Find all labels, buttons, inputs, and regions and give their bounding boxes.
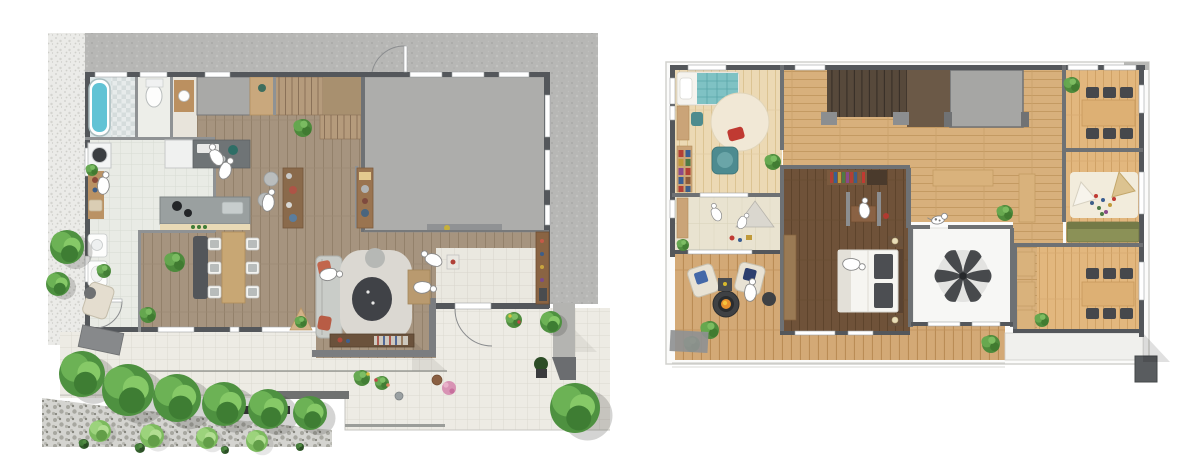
table-dot [366,290,369,293]
window [670,78,675,104]
washer-door [92,148,107,163]
window [1139,172,1144,214]
window [972,322,1000,326]
laundry-item [92,177,98,183]
floor-plan-figure [0,0,1200,470]
stairs-landing [323,77,361,115]
genkan-stand-item [451,260,456,265]
office-chair [1120,268,1133,279]
book [686,186,691,192]
dining-bench [193,236,208,299]
first-floor-plan [42,33,613,455]
book [686,168,691,175]
counter-pot [228,145,238,155]
workspace-table [1082,100,1135,126]
toy [738,238,742,242]
window [1068,65,1098,70]
tv-item [338,338,343,343]
tv-books [374,336,408,345]
book [686,150,691,157]
office-chair [1103,128,1116,139]
laundry-basket [89,200,102,211]
window [545,205,550,225]
sofa-pillow [317,315,332,331]
chair-seat [248,288,257,296]
roof-box [950,70,1023,127]
window [452,72,484,77]
shoe-item [540,252,544,256]
wall2-play-left [1062,148,1066,222]
office-chair [1086,87,1099,98]
kids-rug [711,93,769,151]
wall-cabinet-strip [1017,252,1035,276]
book [686,159,691,166]
book [830,172,833,183]
watering-can [395,392,403,400]
window [670,106,675,120]
garage-floor [364,77,549,232]
vanity-sink [179,91,190,102]
toy [730,236,735,241]
window [1139,262,1144,300]
wall-bath-2 [170,77,173,140]
flower-dot [508,314,511,317]
spiky-plant [79,439,89,449]
wall2-meeting-top [1013,243,1143,247]
window [545,150,550,190]
roof-stub [944,112,952,127]
shoe-item [540,239,544,243]
wall2-workspace-left [1062,65,1066,152]
window [928,322,960,326]
desk-item [289,214,297,222]
tatami-desk [677,198,688,238]
flower-dot [386,383,390,387]
plant-dark-pot [534,357,548,371]
coffee-table [352,277,392,321]
toy-ball [1112,197,1116,201]
book [679,150,684,157]
flower-dot [366,372,370,376]
office-chair [1103,268,1116,279]
lamp [892,317,898,323]
garden-step-thin [345,424,445,427]
book [862,172,865,183]
book [679,177,684,184]
office-chair [1086,268,1099,279]
book [858,172,861,183]
window [795,331,835,335]
kids-desk [677,106,689,140]
shoe-item [540,278,544,282]
stove-burner [184,209,192,217]
island-green [191,225,195,229]
toy-ball [1097,206,1101,210]
office-chair [1103,87,1116,98]
office-chair [1086,308,1099,319]
chair-seat [248,240,257,248]
book [838,172,841,183]
island-green [197,225,201,229]
desk-toy-red [883,213,889,219]
island-green [203,225,207,229]
door-leaf-garage [404,46,407,72]
book [679,186,684,192]
kids-chair [691,112,703,126]
wall-cabinet-strip [1017,282,1035,306]
stool [264,172,278,186]
stairs-upper [827,70,907,117]
sliding-door [700,193,748,197]
book [834,172,837,183]
wall2-meeting-left [1013,243,1017,333]
kids-pillow [680,78,692,99]
wall-living-right [429,298,436,357]
toy-ball [1094,194,1098,198]
wall2-void-top-a [911,225,930,229]
book [679,168,684,175]
chair-seat [248,264,257,272]
bed-pillow [874,254,893,279]
stove-burner [172,201,182,211]
book [854,172,857,183]
wall-living-bottom [312,350,436,357]
wall2-bedroom-right [906,168,911,228]
meeting-table [1082,282,1134,306]
patio-table [84,287,96,299]
green-sofa-back [1067,222,1139,229]
tv-item [346,339,350,343]
stair-stub [821,112,837,125]
wall2-house-bottom-right [1013,329,1143,333]
sliding-door [688,250,752,254]
wall-bath-bottom [85,137,215,140]
bed-pillow [874,283,893,308]
nook-wall [846,192,850,226]
wall2-void-top-b [948,225,1013,229]
roof-stub [1021,112,1029,127]
balcony-right [1005,333,1143,360]
window [205,72,230,77]
toy-ball [1104,210,1108,214]
window [410,72,442,77]
pot-brown [432,375,442,385]
kids-armchair-seat [717,152,733,168]
table-dot [371,301,374,304]
wall-cabinet-strip [1017,310,1035,330]
window [688,65,726,70]
wardrobe [784,235,796,320]
window [140,72,167,77]
pot-dark [536,369,547,378]
toy-ball [1100,212,1104,216]
island-sink [222,202,243,214]
wall2-bedroom-left [780,165,784,335]
wall2-kids-right-a [780,65,784,150]
dining-table [222,232,245,303]
library-cabinet [867,170,887,185]
deck-box-dot [723,282,727,286]
window [230,327,239,332]
side-bench [1019,174,1035,222]
toilet-tank [146,79,163,87]
window [670,200,675,218]
book [679,159,684,166]
chair-seat [210,240,219,248]
cabinet-item [361,185,369,193]
spiky-plant [296,443,304,451]
toy-ball [1090,201,1094,205]
wall-bath-1 [135,77,138,140]
wall2-workspace-bottom [1062,148,1143,152]
book [842,172,845,183]
cabinet-item [362,198,368,204]
laundry-item [93,188,98,193]
fire-core [723,301,727,305]
fridge [165,140,193,168]
entry-door [455,303,491,309]
stairs-landing [907,70,950,127]
window [848,331,873,335]
nook-wall [877,192,881,226]
desk-item [289,186,297,194]
book [686,177,691,184]
asphalt-top [78,33,598,73]
flowers-pink-hi [443,382,448,387]
desk-item [286,173,292,179]
wall-utility-bottom [138,230,215,233]
window [1139,85,1144,113]
chair-seat [210,264,219,272]
closet-vase [258,84,266,92]
umbrella-stand [539,288,547,301]
chair-seat [210,288,219,296]
toy-ball [1108,203,1112,207]
window [95,72,127,77]
window [1104,65,1136,70]
hall-bench [933,170,993,186]
toy [746,235,752,240]
toy-ball [1101,198,1105,202]
toilet [146,85,162,107]
bathtub-water [92,83,107,132]
lamp [892,238,898,244]
wall2-void-left [908,228,913,327]
stair-stub [893,112,909,125]
book [846,172,849,183]
spiky-plant [221,446,229,454]
wall2-library-top [780,165,910,169]
cabinet-item [359,172,371,180]
asphalt-right [549,33,598,304]
cabinet-item [361,209,369,217]
flowers-pink [442,381,456,395]
office-chair [1120,128,1133,139]
wall-stairs-left [273,77,276,115]
stairs-lower-flight [320,115,361,139]
spiky-plant [135,443,145,453]
second-floor-plan [666,62,1170,382]
office-chair [1120,308,1133,319]
window [158,327,194,332]
office-chair [1120,87,1133,98]
side-table [762,292,776,306]
pouf [365,248,385,268]
flower-dot [517,320,520,323]
basin [92,240,103,251]
flowers-pink-dark [449,388,454,393]
flower-dot [374,378,378,382]
office-chair [1103,308,1116,319]
wall-genkan-left [436,303,456,309]
window [795,65,825,70]
deck-mat [670,330,709,353]
desk-item [286,202,292,208]
stair-closet [250,77,275,115]
shower-tile [111,77,137,140]
window [545,95,550,137]
storage-room [197,77,250,115]
book [850,172,853,183]
shoe-item [540,265,544,269]
window [499,72,529,77]
stairs-upper-flight [275,77,323,115]
floor-plans-canvas [0,0,1200,470]
office-chair [1086,128,1099,139]
